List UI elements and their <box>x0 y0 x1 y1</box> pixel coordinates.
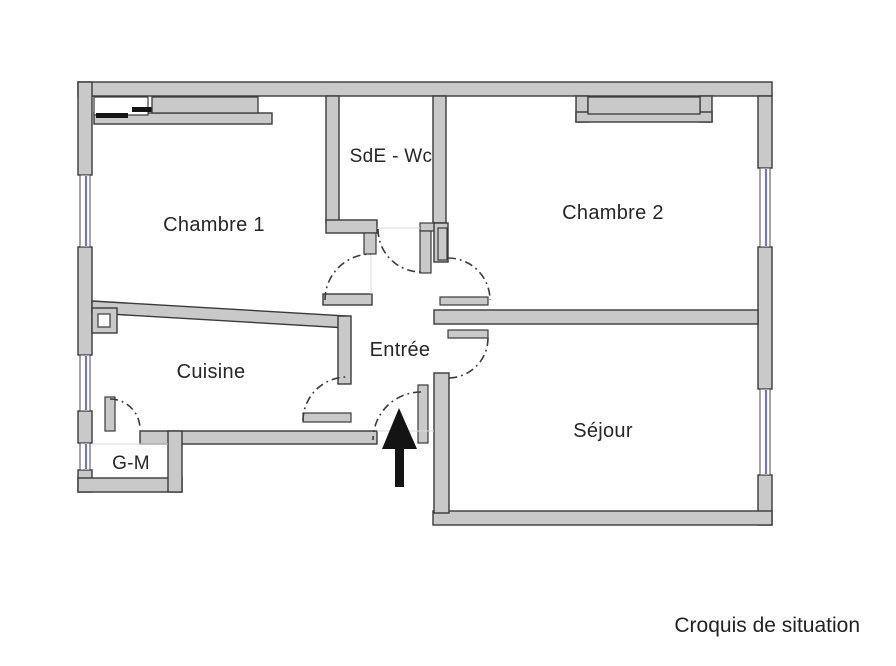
window-cuisine <box>80 355 90 411</box>
wall-entree-sejour <box>434 373 449 513</box>
room-label-chambre2: Chambre 2 <box>562 202 664 224</box>
door-leaf-chambre2 <box>438 228 447 260</box>
window-chambre2 <box>760 168 770 247</box>
door-arc-chambre2 <box>448 258 490 300</box>
niche-chambre1 <box>94 97 148 115</box>
radiator-mark <box>96 113 128 118</box>
door-leaf-gm <box>105 397 115 431</box>
room-label-sejour: Séjour <box>573 420 633 442</box>
room-label-gm: G-M <box>112 453 150 474</box>
wall-sde-foot <box>326 220 377 233</box>
wall-gm-right <box>168 431 182 492</box>
wall-left-segment <box>78 82 92 175</box>
window-chambre1 <box>80 175 90 247</box>
floor-plan-page: Chambre 1 SdE - Wc Chambre 2 Entrée Cuis… <box>0 0 896 666</box>
placard-chambre1 <box>152 97 258 113</box>
wall-bottom-sejour <box>433 511 772 525</box>
room-label-entree: Entrée <box>370 339 431 361</box>
window-sejour <box>760 389 770 475</box>
wall-left-segment <box>78 247 92 355</box>
wall-top <box>78 82 772 96</box>
pilaster-cuisine-core <box>98 314 110 327</box>
room-label-chambre1: Chambre 1 <box>163 214 265 236</box>
door-arc-sde-wc <box>378 229 421 272</box>
door-arc-sejour <box>448 338 488 378</box>
wall-sde-left <box>326 96 339 222</box>
wall-right-segment <box>758 247 772 389</box>
door-leaf-sde <box>420 231 431 273</box>
door-leaves <box>105 228 447 443</box>
placard-chambre2 <box>588 97 700 114</box>
wall-sde-stub <box>364 233 376 254</box>
wall-cuisine-top-slanted <box>92 301 347 328</box>
wall-chambre2-bottom <box>434 310 758 324</box>
window-gm <box>80 443 90 470</box>
threshold-hairlines <box>92 228 434 444</box>
plan-caption: Croquis de situation <box>674 614 860 637</box>
closets <box>94 96 712 124</box>
wall-right-segment <box>758 96 772 168</box>
door-arcs <box>110 229 490 440</box>
jamb-chambre1 <box>323 294 372 305</box>
wall-sde-right <box>433 96 446 223</box>
door-leaf-entrance <box>418 385 428 443</box>
floor-plan-drawing: Chambre 1 SdE - Wc Chambre 2 Entrée Cuis… <box>0 0 896 666</box>
door-leaf-cuisine <box>303 413 351 422</box>
wall-left-segment <box>78 411 92 443</box>
door-arc-chambre1 <box>325 254 371 300</box>
room-label-cuisine: Cuisine <box>177 361 246 383</box>
jamb-sejour <box>448 330 488 338</box>
entrance-arrow-icon <box>382 408 417 487</box>
room-label-sde-wc: SdE - Wc <box>350 146 433 167</box>
wall-bottom-gm <box>78 478 182 492</box>
threshold-chambre2 <box>440 297 488 305</box>
wall-cuisine-right <box>338 316 351 384</box>
